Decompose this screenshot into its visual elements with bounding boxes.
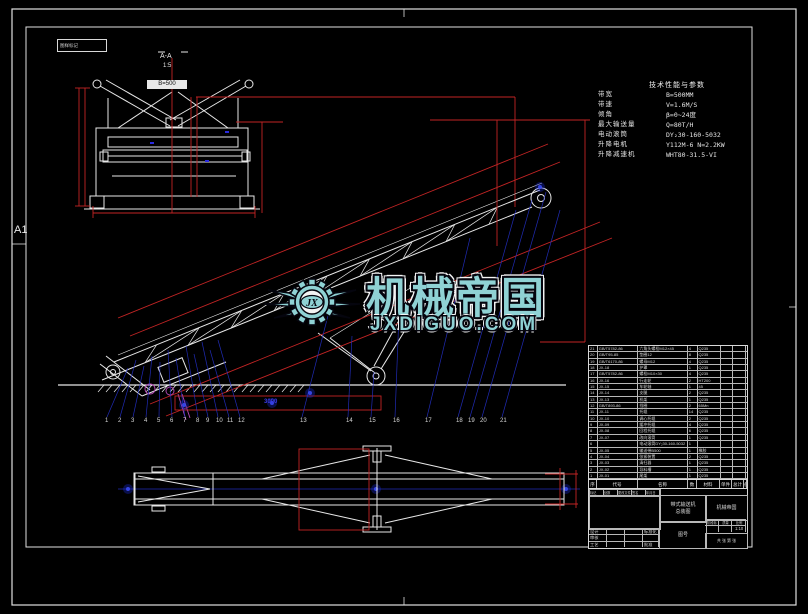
tech-row: 带速V=1.6M/S — [598, 100, 748, 110]
callout-number: 13 — [300, 418, 307, 424]
callout-number: 17 — [425, 418, 432, 424]
callout-number: 8 — [196, 418, 199, 424]
callout-number: 9 — [206, 418, 209, 424]
callout-number: 7 — [183, 418, 186, 424]
callout-number: 14 — [346, 418, 353, 424]
drawing-title-line2: 总装图 — [660, 508, 706, 515]
sheet-size-label: A1 — [14, 224, 27, 236]
callout-number: 19 — [468, 418, 475, 424]
corner-mark-box: 图样标记 — [57, 39, 107, 52]
tail-span-dim: 3000 — [264, 399, 277, 405]
signature-row: 工艺批准 — [589, 541, 659, 547]
callout-number: 16 — [393, 418, 400, 424]
callout-number: 12 — [238, 418, 245, 424]
callout-number: 15 — [369, 418, 376, 424]
watermark: JX 机械帝国 JXDIGUO.COM — [262, 258, 582, 346]
tech-row: 带宽B=500MM — [598, 90, 748, 100]
tech-row: 电动滚筒DY₂30-160-5032 — [598, 130, 748, 140]
tech-row: 最大输送量Q=80T/H — [598, 120, 748, 130]
callout-number: 21 — [500, 418, 507, 424]
callout-number: 2 — [118, 418, 121, 424]
drawing-title-box: 带式输送机 总装图 — [659, 495, 707, 523]
callout-number: 10 — [216, 418, 223, 424]
belt-width-tag: B=500 — [147, 80, 187, 89]
callout-number: 4 — [144, 418, 147, 424]
tech-table-title: 技术性能与参数 — [612, 80, 742, 90]
callout-number: 6 — [170, 418, 173, 424]
callout-number: 11 — [227, 418, 233, 424]
tech-row: 倾角β=0~24度 — [598, 110, 748, 120]
section-scale: 1:5 — [163, 63, 171, 69]
stage-grid: 阶段标记质量比例1:10 — [705, 519, 746, 532]
tech-table-rows: 带宽B=500MM带速V=1.6M/S倾角β=0~24度最大输送量Q=80T/H… — [598, 90, 748, 160]
company-box: 机械帝国 — [705, 495, 748, 521]
logo-initials: JX — [305, 298, 318, 309]
callout-number: 1 — [105, 418, 108, 424]
tech-parameters-table: 技术性能与参数 带宽B=500MM带速V=1.6M/S倾角β=0~24度最大输送… — [598, 80, 748, 160]
revision-blank-area — [589, 495, 661, 530]
drawing-number-box: 图号 — [659, 521, 707, 549]
callout-number: 3 — [131, 418, 134, 424]
tech-row: 升降电机Y112M-6 N=2.2KW — [598, 140, 748, 150]
sheet-count-note: 共 张 第 张 — [705, 533, 748, 549]
callout-number: 5 — [157, 418, 160, 424]
callout-number: 20 — [480, 418, 487, 424]
section-view-dimensions — [75, 58, 515, 218]
watermark-domain: JXDIGUO.COM — [370, 314, 538, 336]
section-label: A-A — [160, 53, 172, 60]
title-block: 标记处数更改文件号签名年月日 设计标准化审核工艺批准 带式输送机 总装图 图号 … — [588, 488, 748, 549]
tech-row: 升降减速机WHT80-31.5-VI — [598, 150, 748, 160]
signature-rows: 设计标准化审核工艺批准 — [589, 528, 659, 547]
callout-number: 18 — [456, 418, 463, 424]
cad-drawing-screenshot: { "sheet": { "size_label": "A1", "corner… — [0, 0, 808, 614]
winged-gear-logo: JX — [262, 262, 362, 342]
bom-table: 21GB/T5782-86六角头螺栓M12×454Q23520GB/T95-85… — [588, 345, 748, 479]
drawing-title-line1: 带式输送机 — [660, 501, 706, 508]
